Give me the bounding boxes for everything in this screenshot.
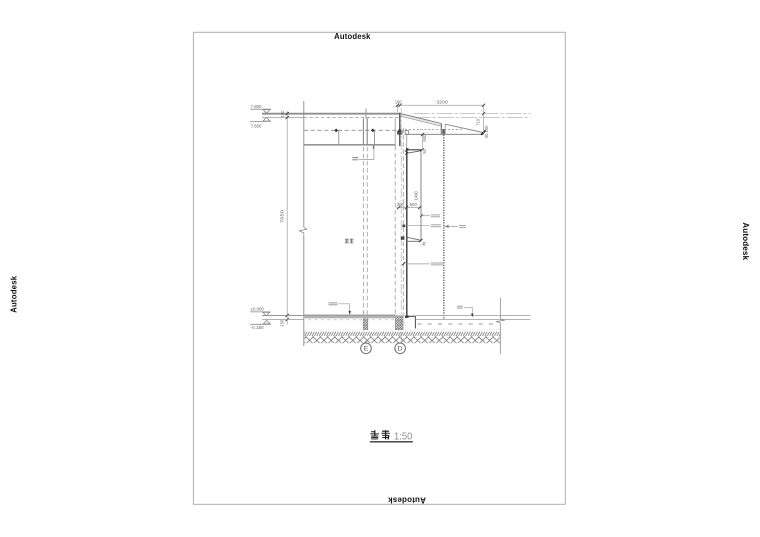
svg-text:Autodesk: Autodesk <box>9 275 18 312</box>
svg-text:7.650: 7.650 <box>251 124 262 129</box>
svg-text:150: 150 <box>280 319 285 327</box>
svg-text:7650: 7650 <box>279 209 284 223</box>
svg-text:1:50: 1:50 <box>394 432 413 443</box>
svg-text:150: 150 <box>280 110 285 118</box>
svg-text:300: 300 <box>397 202 405 207</box>
svg-text:1490: 1490 <box>414 190 419 200</box>
svg-text:±0.000: ±0.000 <box>251 307 265 312</box>
svg-text:-0.150: -0.150 <box>251 325 265 330</box>
svg-text:E: E <box>364 346 369 353</box>
svg-text:600: 600 <box>422 134 427 142</box>
svg-text:30.500: 30.500 <box>484 125 489 138</box>
svg-text:Autodesk: Autodesk <box>741 222 750 260</box>
svg-text:Autodesk: Autodesk <box>388 495 426 504</box>
svg-text:7.800: 7.800 <box>251 104 262 109</box>
svg-text:500: 500 <box>410 202 418 207</box>
svg-text:D: D <box>398 346 403 353</box>
svg-text:3200: 3200 <box>436 99 448 104</box>
svg-text:710: 710 <box>475 118 480 126</box>
svg-text:Autodesk: Autodesk <box>334 32 371 41</box>
